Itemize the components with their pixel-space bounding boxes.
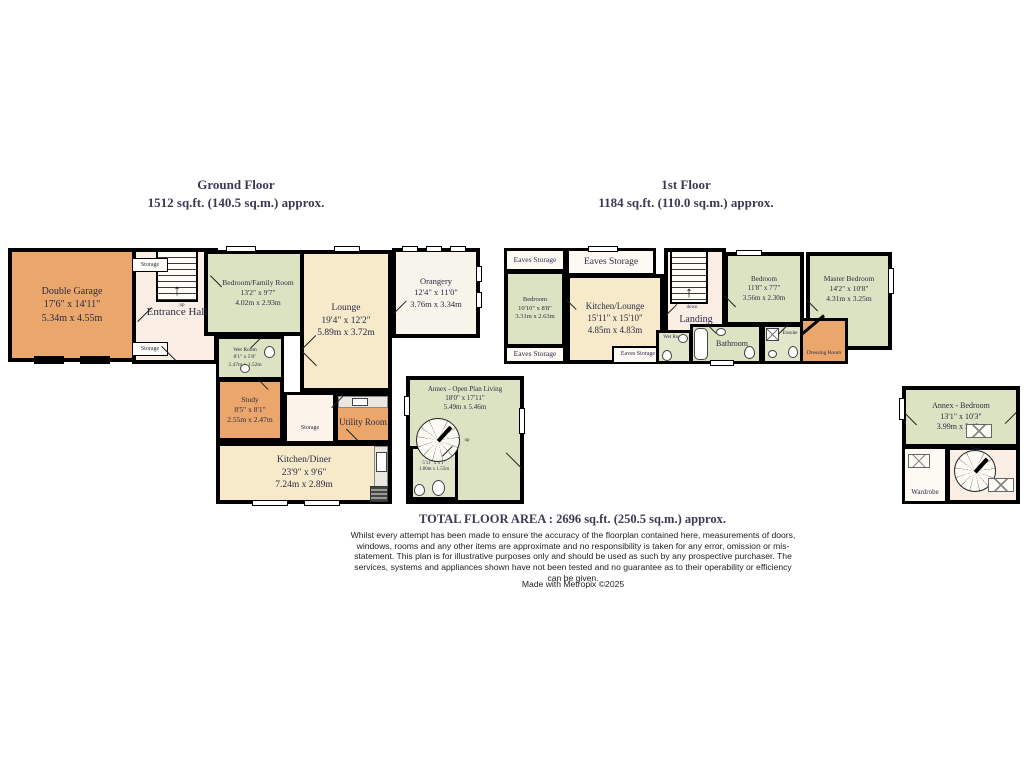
room-dims-m: 3.31m x 2.63m — [515, 313, 554, 322]
room-name: Eaves Storage — [514, 349, 557, 359]
sink-icon — [240, 364, 250, 373]
room-dims-ft: 23'9" x 9'6" — [275, 467, 333, 480]
room-dims-ft: 15'11" x 15'10" — [586, 313, 644, 325]
room-dims-m: 4.85m x 4.83m — [586, 325, 644, 337]
garage-door-marker — [34, 356, 64, 364]
room-name: Bedroom/Family Room — [222, 278, 293, 288]
bathtub-icon — [694, 328, 708, 360]
window — [476, 292, 482, 308]
disclaimer-text: Whilst every attempt has been made to en… — [347, 530, 799, 584]
room-dims-ft: 13'1" x 10'3" — [932, 412, 990, 423]
stair-arrow-icon: ↑ — [173, 284, 181, 299]
garage-door-marker — [80, 356, 110, 364]
room-dims-m: 7.24m x 2.89m — [275, 479, 333, 492]
stair-direction-label: down — [964, 447, 988, 452]
room-name: Dressing Room — [807, 350, 841, 361]
room-storage-middle: Storage — [284, 392, 336, 444]
ground-floor-title: Ground Floor 1512 sq.ft. (140.5 sq.m.) a… — [80, 176, 392, 212]
window — [888, 268, 894, 294]
tag-label: Storage — [141, 346, 159, 352]
room-name: Bedroom — [515, 296, 554, 305]
room-dims-ft: 13'2" x 9'7" — [222, 288, 293, 298]
room-name-landing: Landing — [664, 314, 728, 325]
room-dims-m: 5.89m x 3.72m — [317, 327, 375, 340]
first-floor-title-line1: 1st Floor — [530, 176, 842, 194]
window — [226, 246, 256, 252]
spiral-staircase — [416, 418, 460, 462]
sink-icon — [678, 334, 688, 343]
room-dims-m: 1.80m x 1.55m — [419, 467, 449, 474]
room-dims-ft: 10'10" x 8'8" — [515, 305, 554, 314]
skylight-icon — [988, 478, 1014, 492]
storage-tag-top: Storage — [132, 258, 168, 272]
room-kitchen-diner: Kitchen/Diner 23'9" x 9'6" 7.24m x 2.89m — [216, 442, 392, 504]
window — [736, 250, 762, 256]
ground-floor-title-line2: 1512 sq.ft. (140.5 sq.m.) approx. — [80, 194, 392, 212]
room-name: Master Bedroom — [824, 274, 875, 284]
room-study: Study 8'5" x 8'1" 2.55m x 2.47m — [216, 378, 284, 442]
toilet-icon — [414, 484, 425, 496]
first-floor-title-line2: 1184 sq.ft. (110.0 sq.m.) approx. — [530, 194, 842, 212]
room-dims-ft: 8'1" x 5'0" — [228, 354, 261, 361]
room-double-garage: Double Garage 17'6" x 14'11" 5.34m x 4.5… — [8, 248, 136, 362]
stair-direction-label: down — [680, 305, 704, 310]
window — [899, 398, 905, 420]
room-name: Study — [227, 395, 272, 405]
room-name: Eaves Storage — [584, 256, 638, 269]
window — [252, 500, 288, 506]
room-name: Utility Room — [339, 407, 387, 429]
staircase-first: ↑ — [670, 250, 708, 304]
room-name: Wardrobe — [911, 488, 938, 501]
credit-text: Made with Metropix ©2025 — [347, 579, 799, 589]
room-dims-ft: 8'5" x 8'1" — [227, 405, 272, 415]
room-dims-ft: 12'4" x 11'0" — [410, 287, 461, 298]
room-dims-ft: 19'4" x 12'2" — [317, 315, 375, 328]
room-name: Kitchen/Diner — [275, 454, 333, 467]
room-name: Orangery — [410, 276, 461, 287]
spiral-stair-arrow-icon — [437, 426, 453, 443]
skylight-icon — [966, 424, 992, 438]
room-bedroom-first: Bedroom 10'10" x 8'8" 3.31m x 2.63m — [504, 270, 566, 348]
room-name: Double Garage — [42, 285, 103, 298]
window — [426, 246, 442, 252]
room-name: Lounge — [317, 302, 375, 315]
window — [304, 500, 340, 506]
window — [402, 246, 418, 252]
floorplan-canvas: Ground Floor 1512 sq.ft. (140.5 sq.m.) a… — [0, 0, 1024, 768]
toilet-icon — [788, 346, 798, 358]
room-dims-m: 4.02m x 2.93m — [222, 298, 293, 308]
shower-icon — [766, 328, 779, 341]
room-eaves-storage-tm: Eaves Storage — [566, 248, 656, 276]
window — [404, 396, 410, 416]
toilet-icon — [662, 350, 672, 361]
room-name: Bedroom — [743, 275, 785, 284]
tag-label: Storage — [141, 262, 159, 268]
spiral-stair-arrow-icon — [974, 458, 989, 474]
skylight-icon — [908, 454, 930, 468]
room-dressing: Dressing Room — [800, 318, 848, 364]
window — [710, 360, 734, 366]
window — [334, 246, 360, 252]
room-bedroom-mid: Bedroom 11'8" x 7'7" 3.56m x 2.30m — [724, 252, 804, 326]
room-wet-room-ground: Wet Room 8'1" x 5'0" 2.47m x 1.52m — [216, 336, 284, 380]
total-floor-area: TOTAL FLOOR AREA : 2696 sq.ft. (250.5 sq… — [330, 512, 815, 527]
sink-icon — [432, 480, 445, 496]
room-orangery: Orangery 12'4" x 11'0" 3.76m x 3.34m — [392, 248, 480, 338]
window — [519, 408, 525, 434]
room-name: Eaves Storage — [621, 351, 655, 359]
hob-icon — [370, 486, 388, 502]
room-bedroom-family: Bedroom/Family Room 13'2" x 9'7" 4.02m x… — [204, 250, 312, 336]
room-dims-ft: 11'8" x 7'7" — [743, 284, 785, 293]
room-name: Wet Room — [228, 347, 261, 354]
window — [588, 246, 618, 252]
room-dims-m: 2.55m x 2.47m — [227, 415, 272, 425]
room-name: Bathroom — [704, 339, 748, 350]
sink-icon — [716, 328, 726, 336]
toilet-icon — [744, 346, 755, 359]
ground-floor-title-line1: Ground Floor — [80, 176, 392, 194]
sink-icon — [768, 350, 777, 358]
room-dims-m: 3.76m x 3.34m — [410, 299, 461, 310]
utility-sink-icon — [352, 398, 368, 406]
toilet-icon — [264, 346, 275, 358]
window — [476, 266, 482, 282]
room-name: Storage — [301, 425, 319, 441]
window — [450, 246, 466, 252]
room-lounge: Lounge 19'4" x 12'2" 5.89m x 3.72m — [300, 250, 392, 392]
room-dims-m: 4.31m x 3.25m — [824, 294, 875, 304]
stair-direction-label: up — [458, 438, 476, 443]
room-dims-m: 5.49m x 5.46m — [428, 403, 502, 412]
room-dims-m: 3.56m x 2.30m — [743, 294, 785, 303]
room-dims-m: 5.34m x 4.55m — [42, 312, 103, 325]
fridge-icon — [376, 452, 387, 472]
stair-arrow-icon: ↑ — [685, 286, 693, 301]
room-name: Kitchen/Lounge — [586, 301, 644, 313]
room-dims-ft: 14'2" x 10'8" — [824, 284, 875, 294]
room-dims-ft: 18'0" x 17'11" — [428, 394, 502, 403]
room-dims-ft: 17'6" x 14'11" — [42, 298, 103, 311]
room-eaves-storage-tl: Eaves Storage — [504, 248, 566, 272]
room-name: Annex - Open Plan Living — [428, 385, 502, 394]
first-floor-title: 1st Floor 1184 sq.ft. (110.0 sq.m.) appr… — [530, 176, 842, 212]
room-name: Eaves Storage — [514, 255, 557, 265]
room-name: Annex - Bedroom — [932, 401, 990, 412]
room-annex-bedroom: Annex - Bedroom 13'1" x 10'3" 3.99m x 3.… — [902, 386, 1020, 448]
